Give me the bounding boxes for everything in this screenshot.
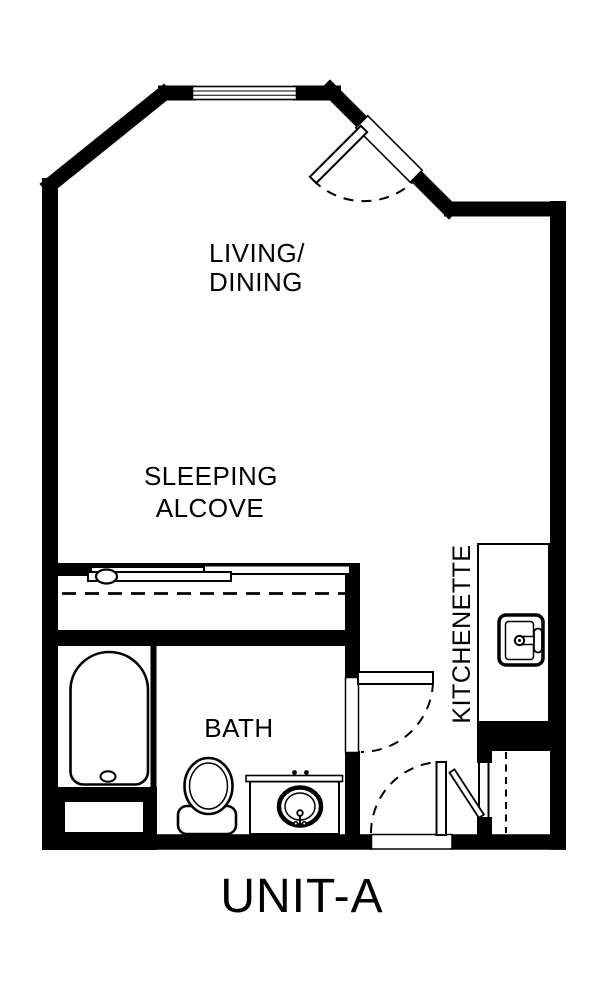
toilet-fixture <box>178 758 236 834</box>
sleeping-alcove-label-line2: ALCOVE <box>156 493 265 523</box>
bath-label: BATH <box>204 713 273 743</box>
entry-door-threshold <box>372 835 453 850</box>
alcove-closet <box>58 566 352 594</box>
bath-door <box>346 672 434 753</box>
sliding-door-handle <box>96 570 117 584</box>
kitchen-sink-fixture <box>499 615 543 665</box>
vanity-faucet-handle-left <box>292 770 297 775</box>
bath-door-opening <box>346 678 359 753</box>
sliding-door-track-stub <box>58 567 92 576</box>
vanity-faucet-handle-right <box>304 770 309 775</box>
bath-door-leaf <box>358 672 433 684</box>
unit-title: UNIT-A <box>220 870 383 923</box>
living-room-door-leaf <box>310 126 367 183</box>
bath-door-swing-arc <box>361 682 433 752</box>
wall-diagonal-top-left <box>50 94 163 185</box>
kitchen-sink-faucet <box>534 629 542 653</box>
sleeping-alcove-label-line1: SLEEPING <box>144 461 278 491</box>
bathtub-drain <box>101 771 116 781</box>
toilet-bowl-outer <box>185 758 233 814</box>
floorplan-page: LIVING/ DINING SLEEPING ALCOVE BATH KITC… <box>0 0 614 998</box>
floorplan-drawing: LIVING/ DINING SLEEPING ALCOVE BATH KITC… <box>0 0 614 998</box>
kitchen-sink-drain-dot <box>518 639 521 642</box>
kitchenette-area <box>478 544 549 722</box>
living-room-door-swing-arc <box>313 180 415 201</box>
kitchenette-label: KITCHENETTE <box>448 544 476 723</box>
wall-block-kitchenette-bottom <box>477 721 566 751</box>
entry-door-swing-arc <box>371 762 442 833</box>
wall-stub-closet-lower <box>477 817 492 836</box>
vanity-faucet-foot-left <box>294 822 298 826</box>
bathtub-outline <box>71 652 149 785</box>
window <box>193 87 297 100</box>
living-dining-label-line2: DINING <box>209 267 303 297</box>
living-room-door-opening <box>356 116 422 182</box>
living-room-door <box>310 116 422 201</box>
bathtub-fixture <box>71 652 149 785</box>
window-frame <box>193 87 297 100</box>
vanity-sink-fixture <box>246 770 343 834</box>
plumbing-niche <box>65 802 143 832</box>
entry-door-leaf <box>437 762 447 835</box>
vanity-backsplash <box>246 776 343 782</box>
vanity-faucet-foot-right <box>302 822 306 826</box>
vanity-drain <box>297 810 303 816</box>
living-dining-label-line1: LIVING/ <box>209 238 305 268</box>
unit-entry-door <box>371 762 452 849</box>
